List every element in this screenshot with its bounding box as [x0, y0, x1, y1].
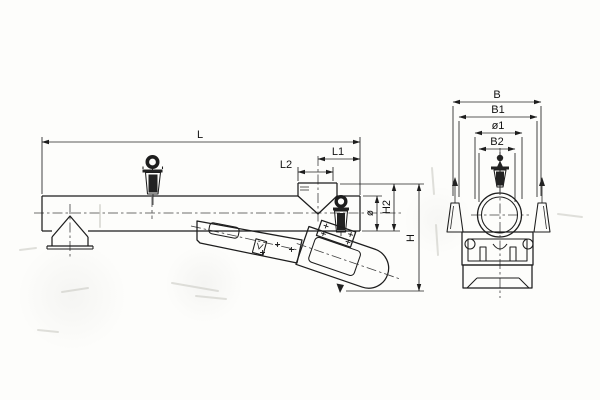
- pin-tip: [539, 177, 545, 186]
- feeder-tube: [42, 196, 360, 231]
- dim-label-B: B: [493, 89, 500, 101]
- end-motor-body: [463, 265, 532, 288]
- spring-top-plate: [491, 167, 509, 170]
- dim-label-L1: L1: [332, 146, 344, 158]
- inlet-funnel: [298, 183, 337, 214]
- suspension-spring-right: [333, 197, 349, 236]
- spring-coil: [496, 172, 504, 186]
- suspension-hanger-left: [143, 157, 163, 205]
- funnel-hatch-ticks: [300, 187, 309, 190]
- ext-lines-L2: [298, 167, 333, 181]
- hanger-eye-ring: [147, 157, 157, 167]
- hanger-bracket-left: [447, 177, 463, 232]
- clamp-bolt-right: [523, 239, 533, 249]
- clamp-bolt-left: [465, 239, 475, 249]
- dim-label-H2: H2: [381, 200, 393, 214]
- technical-drawing: L L1 L2 ø H2 H B B1 ø1 B2: [0, 0, 600, 400]
- dim-label-H: H: [405, 234, 417, 242]
- spring-top-plate: [333, 208, 349, 211]
- end-view: B B1 ø1 B2: [447, 89, 550, 298]
- clamp-leg-left: [480, 247, 486, 261]
- dim-label-B1: B1: [491, 104, 504, 116]
- motor-bottom-lug: [337, 284, 345, 294]
- clamp-leg-right: [510, 247, 516, 261]
- dim-label-B2: B2: [490, 136, 503, 148]
- spring-eye: [497, 155, 503, 161]
- dim-label-L2: L2: [280, 159, 292, 171]
- dim-label-dia1: ø1: [492, 120, 505, 132]
- hanger-bracket-right: [534, 177, 550, 232]
- drive-arm: [197, 221, 302, 263]
- end-suspension-spring: [491, 152, 509, 192]
- drawing-sheet: L L1 L2 ø H2 H B B1 ø1 B2: [0, 0, 600, 400]
- spring-eye-ring: [336, 197, 346, 207]
- dim-label-L: L: [197, 129, 203, 141]
- hanger-spring-coil: [149, 175, 158, 193]
- vibration-motor: [290, 215, 408, 297]
- side-view: L L1 L2 ø H2 H: [34, 129, 424, 298]
- dim-label-dia: ø: [365, 210, 376, 216]
